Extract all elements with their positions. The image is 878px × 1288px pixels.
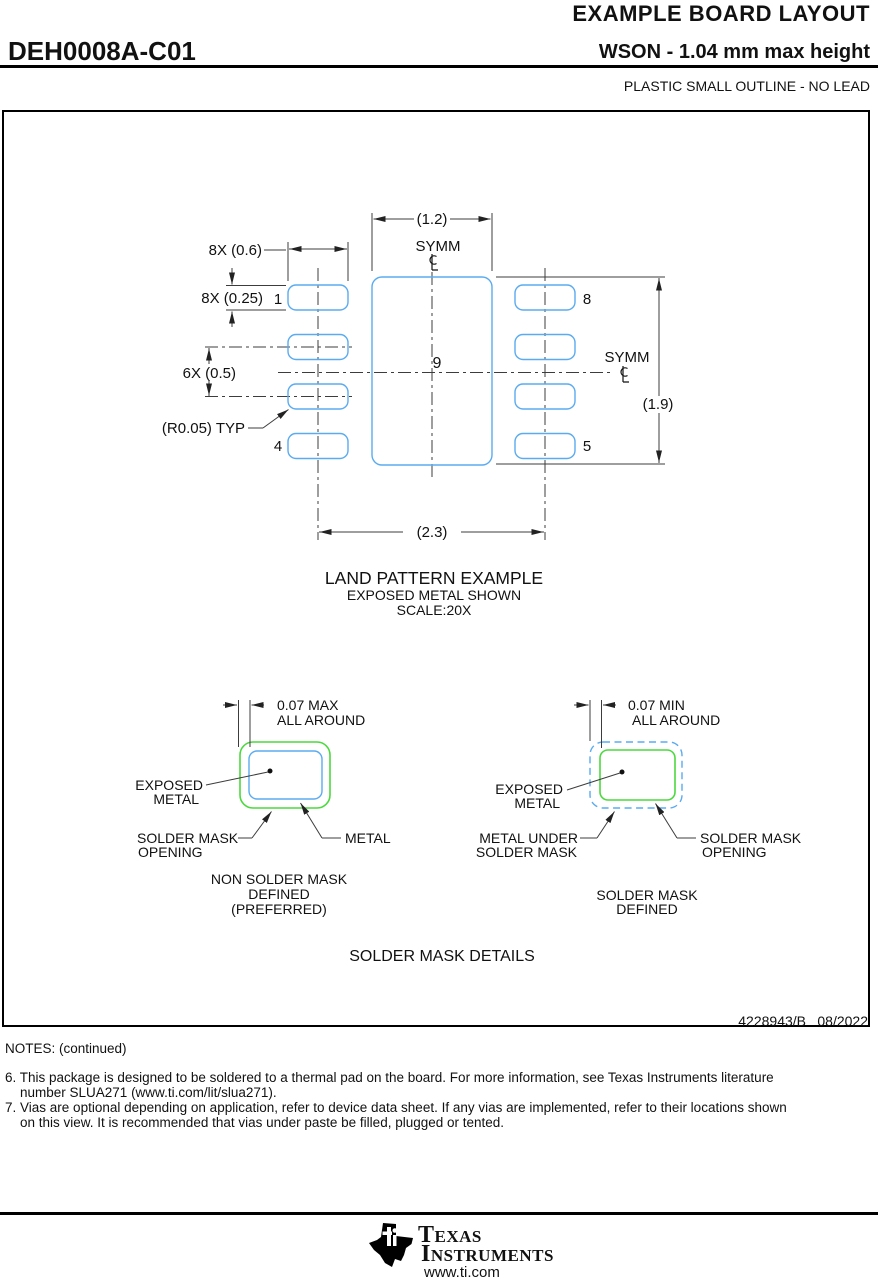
pin-5-label: 5 bbox=[583, 438, 591, 455]
nsmd-caption-2: DEFINED bbox=[248, 886, 309, 902]
dim-pad9-height-label: (1.9) bbox=[643, 396, 674, 413]
ti-wordmark-line-2: Instruments bbox=[418, 1245, 554, 1264]
smd-solder-mask-opening-shape bbox=[600, 750, 675, 800]
pin-1-label: 1 bbox=[274, 291, 282, 308]
nsmd-detail: 0.07 MAX ALL AROUND EXPOSED METAL SOLDER… bbox=[135, 697, 391, 917]
smd-caption-2: DEFINED bbox=[616, 901, 677, 917]
board-layout-drawing: (1.2) SYMM 8X (0.6) 8X (0.25) 6X (0.5) (… bbox=[0, 110, 878, 1029]
symm-top-label: SYMM bbox=[416, 238, 461, 255]
ti-url[interactable]: www.ti.com bbox=[424, 1264, 500, 1281]
note-7: 7. Vias are optional depending on applic… bbox=[5, 1100, 787, 1130]
dim-pitch-label: 6X (0.5) bbox=[183, 365, 236, 382]
note-6-line-2: number SLUA271 (www.ti.com/lit/slua271). bbox=[5, 1085, 787, 1100]
centerline-symbol bbox=[621, 366, 629, 382]
ti-wordmark: Texas Instruments bbox=[418, 1222, 554, 1264]
nsmd-caption-3: (PREFERRED) bbox=[231, 901, 327, 917]
nsmd-metal-label: METAL bbox=[345, 830, 391, 846]
nsmd-dim-label-1: 0.07 MAX bbox=[277, 697, 339, 713]
dim-pad-height-label: 8X (0.25) bbox=[201, 290, 263, 307]
ti-logo: Texas Instruments bbox=[368, 1222, 554, 1269]
smd-opening-label-2: OPENING bbox=[702, 844, 767, 860]
dim-corner-radius: (R0.05) TYP bbox=[162, 410, 289, 438]
document-title: EXAMPLE BOARD LAYOUT bbox=[572, 1, 870, 27]
land-pattern-subtitle-2: SCALE:20X bbox=[397, 602, 472, 618]
ti-texas-map-icon bbox=[368, 1222, 414, 1269]
header-rule bbox=[0, 65, 878, 68]
centerlines bbox=[205, 268, 612, 540]
dim-row-span: (2.3) bbox=[319, 524, 544, 541]
dim-corner-radius-label: (R0.05) TYP bbox=[162, 420, 245, 437]
solder-mask-details-title: SOLDER MASK DETAILS bbox=[349, 948, 535, 965]
nsmd-caption-1: NON SOLDER MASK bbox=[211, 871, 348, 887]
land-pattern-title: LAND PATTERN EXAMPLE bbox=[325, 568, 543, 588]
smd-metal-under-label-2: SOLDER MASK bbox=[476, 844, 578, 860]
symm-right-label: SYMM bbox=[605, 349, 650, 366]
nsmd-metal-shape bbox=[249, 751, 322, 799]
package-description: WSON - 1.04 mm max height bbox=[599, 41, 870, 64]
nsmd-exposed-label-2: METAL bbox=[153, 791, 199, 807]
dim-pad-width: 8X (0.6) bbox=[209, 242, 348, 281]
pin-9-label: 9 bbox=[433, 355, 442, 372]
footer-rule bbox=[0, 1212, 878, 1215]
drawing-date: 08/2022 bbox=[817, 1013, 868, 1029]
dim-pitch: 6X (0.5) bbox=[183, 348, 236, 396]
note-6-line-1: This package is designed to be soldered … bbox=[20, 1070, 774, 1085]
part-number: DEH0008A-C01 bbox=[8, 36, 196, 67]
land-pattern-subtitle-1: EXPOSED METAL SHOWN bbox=[347, 587, 521, 603]
centerline-symbol bbox=[430, 254, 438, 270]
note-7-line-1: Vias are optional depending on applicati… bbox=[20, 1100, 787, 1115]
nsmd-leader-dot bbox=[268, 769, 273, 774]
note-7-line-2: on this view. It is recommended that via… bbox=[5, 1115, 787, 1130]
smd-exposed-label-2: METAL bbox=[514, 795, 560, 811]
dim-pad-width-label: 8X (0.6) bbox=[209, 242, 262, 259]
nsmd-opening-label-2: OPENING bbox=[138, 844, 203, 860]
smd-detail: 0.07 MIN ALL AROUND EXPOSED METAL METAL … bbox=[476, 697, 802, 917]
pin-8-label: 8 bbox=[583, 291, 591, 308]
package-family: PLASTIC SMALL OUTLINE - NO LEAD bbox=[624, 78, 870, 94]
pin-4-label: 4 bbox=[274, 438, 282, 455]
drawing-number: 4228943/B bbox=[738, 1013, 806, 1029]
notes-heading: NOTES: (continued) bbox=[5, 1041, 787, 1056]
notes-section: NOTES: (continued) 6. This package is de… bbox=[5, 1041, 787, 1130]
nsmd-dim-label-2: ALL AROUND bbox=[277, 712, 365, 728]
smd-dim-label-1: 0.07 MIN bbox=[628, 697, 685, 713]
dim-row-span-label: (2.3) bbox=[417, 524, 448, 541]
note-6-number: 6. bbox=[5, 1070, 16, 1085]
note-6: 6. This package is designed to be solder… bbox=[5, 1070, 787, 1100]
note-7-number: 7. bbox=[5, 1100, 16, 1115]
smd-dim-label-2: ALL AROUND bbox=[632, 712, 720, 728]
dim-pad9-width-label: (1.2) bbox=[417, 211, 448, 228]
smd-leader-dot bbox=[620, 770, 625, 775]
